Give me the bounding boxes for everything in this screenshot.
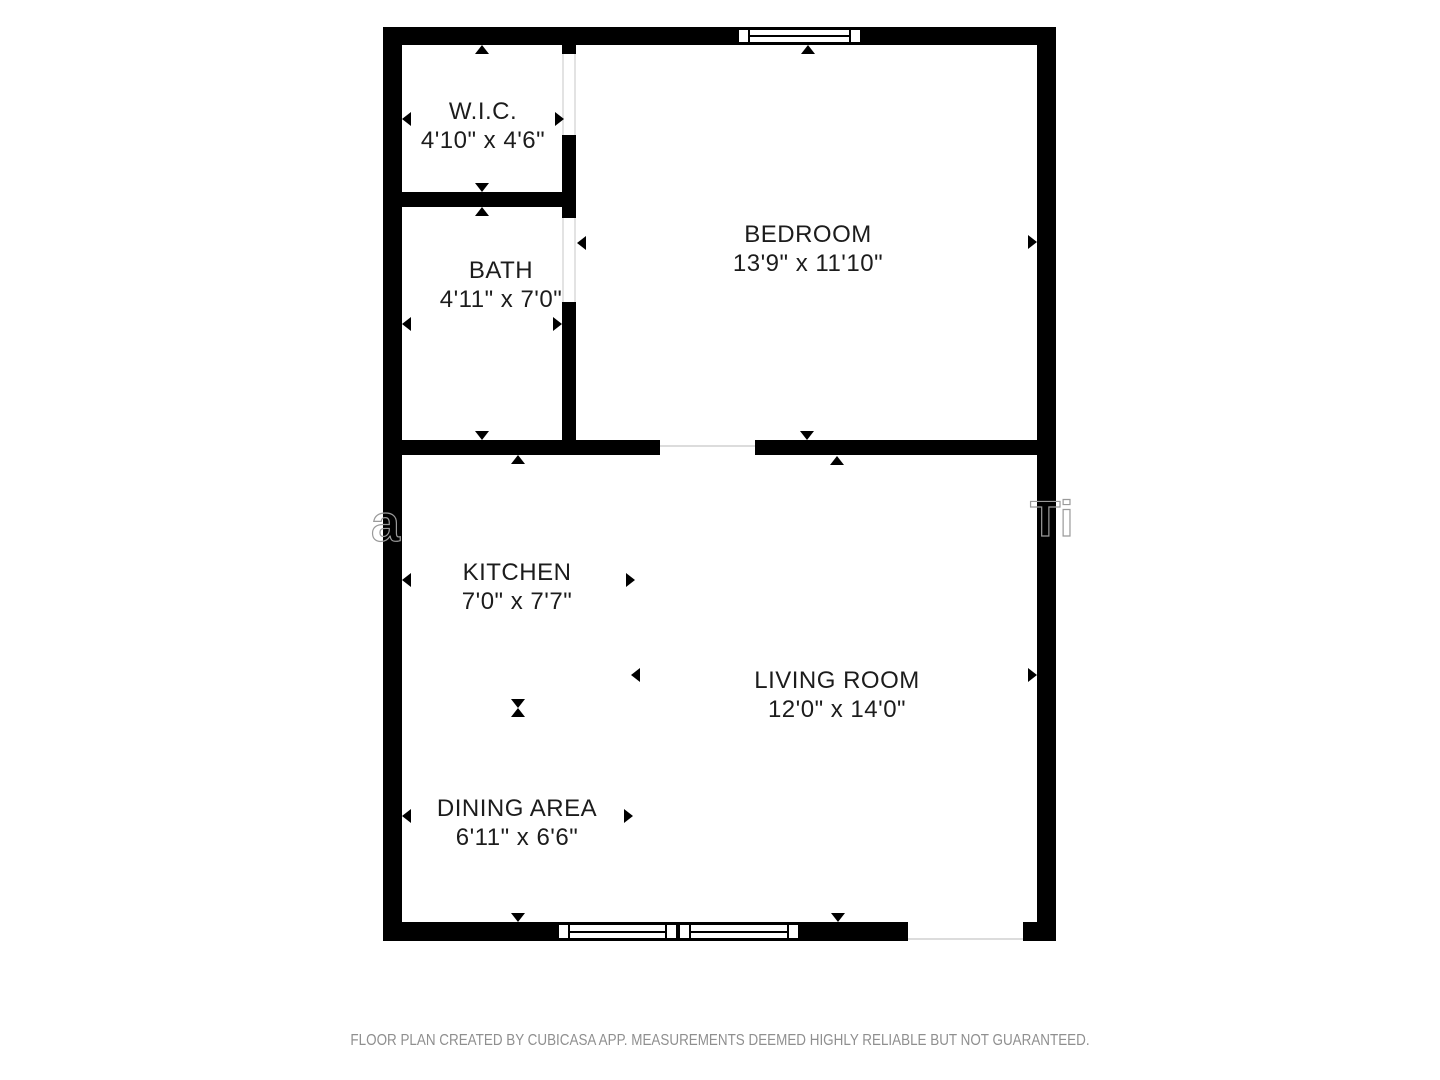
bedroom-opening-line (660, 445, 755, 447)
wall-right (1037, 27, 1056, 941)
measure-arrow-icon (631, 668, 640, 682)
window-bottom-left (557, 923, 678, 940)
measure-arrow-icon (577, 236, 586, 250)
wall-horizontal-left (402, 440, 660, 455)
measure-arrow-icon (475, 207, 489, 216)
room-name: DINING AREA (417, 794, 617, 823)
room-dims: 12'0" x 14'0" (687, 695, 987, 724)
wall-wic-bath-divider (402, 192, 575, 207)
measure-arrow-icon (801, 45, 815, 54)
measure-arrow-icon (511, 455, 525, 464)
room-dims: 6'11" x 6'6" (417, 823, 617, 852)
measure-arrow-icon (1028, 235, 1037, 249)
room-dims: 4'10" x 4'6" (383, 126, 583, 155)
window-top (737, 28, 862, 44)
room-name: BEDROOM (658, 220, 958, 249)
room-label-wic: W.I.C. 4'10" x 4'6" (383, 97, 583, 155)
measure-arrow-icon (626, 573, 635, 587)
watermark-fragment-right: Ti (1030, 490, 1074, 548)
wall-mid-stub (562, 44, 576, 54)
room-dims: 13'9" x 11'10" (658, 249, 958, 278)
room-label-living: LIVING ROOM 12'0" x 14'0" (687, 666, 987, 724)
wall-mid-lower (562, 302, 576, 455)
footer-disclaimer: FLOOR PLAN CREATED BY CUBICASA APP. MEAS… (115, 1032, 1325, 1050)
room-dims: 4'11" x 7'0" (401, 285, 601, 314)
measure-arrow-icon (402, 809, 411, 823)
measure-arrow-icon (831, 913, 845, 922)
floor-plan-page: W.I.C. 4'10" x 4'6" BATH 4'11" x 7'0" BE… (0, 0, 1440, 1080)
room-label-bedroom: BEDROOM 13'9" x 11'10" (658, 220, 958, 278)
measure-arrow-icon (553, 317, 562, 331)
room-label-dining: DINING AREA 6'11" x 6'6" (417, 794, 617, 852)
measure-arrow-icon (624, 809, 633, 823)
measure-arrow-icon (511, 699, 525, 708)
room-name: KITCHEN (417, 558, 617, 587)
wall-left (383, 27, 402, 941)
room-dims: 7'0" x 7'7" (417, 587, 617, 616)
window-bottom-right (678, 923, 800, 940)
measure-arrow-icon (475, 183, 489, 192)
room-name: BATH (401, 256, 601, 285)
wall-bottom-corner (1023, 922, 1056, 941)
measure-arrow-icon (511, 913, 525, 922)
room-name: LIVING ROOM (687, 666, 987, 695)
measure-arrow-icon (402, 317, 411, 331)
measure-arrow-icon (475, 45, 489, 54)
measure-arrow-icon (1028, 668, 1037, 682)
wall-top (383, 27, 1056, 45)
measure-arrow-icon (402, 573, 411, 587)
room-name: W.I.C. (383, 97, 583, 126)
measure-arrow-icon (511, 708, 525, 717)
entry-opening-line (908, 938, 1023, 940)
measure-arrow-icon (830, 456, 844, 465)
wall-horizontal-right (755, 440, 1037, 455)
measure-arrow-icon (475, 431, 489, 440)
measure-arrow-icon (800, 431, 814, 440)
room-label-bath: BATH 4'11" x 7'0" (401, 256, 601, 314)
room-label-kitchen: KITCHEN 7'0" x 7'7" (417, 558, 617, 616)
watermark-fragment-left: a (371, 494, 400, 554)
